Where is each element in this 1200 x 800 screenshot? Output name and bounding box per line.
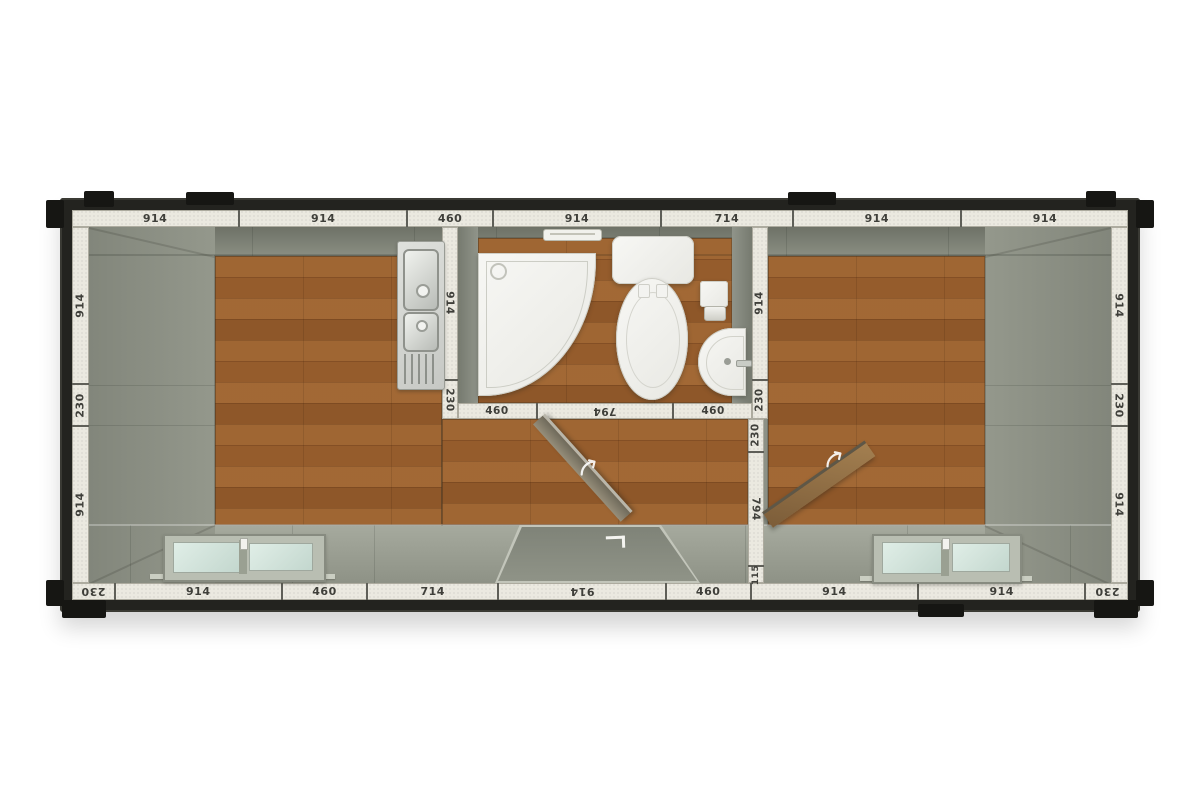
dim-segment: 914 <box>750 583 917 600</box>
dim-segment: 460 <box>458 403 536 419</box>
roof-tab-icon <box>788 192 836 205</box>
window-pane <box>249 543 313 571</box>
dim-segment: 914 <box>960 210 1128 227</box>
dim-segment: 914 <box>1111 227 1128 383</box>
panel-seam <box>985 425 1111 426</box>
panel-seam <box>89 425 215 426</box>
bathroom-wall-east: 914 230 <box>752 227 768 419</box>
wall-shadow-line <box>89 254 1111 256</box>
window-pane <box>882 542 942 574</box>
toilet-paper-roll <box>704 306 726 321</box>
dim-segment: 914 <box>72 210 238 227</box>
dim-segment: 714 <box>366 583 497 600</box>
panel-seam <box>948 227 949 256</box>
panel-seam <box>374 525 375 583</box>
corner-casting-icon <box>1136 200 1154 228</box>
dim-segment: 914 <box>917 583 1084 600</box>
dimension-strip-top: 914 914 460 914 714 914 914 <box>72 210 1128 227</box>
corner-casting-icon <box>1094 600 1138 618</box>
shower-drain-icon <box>490 263 507 280</box>
dim-segment: 460 <box>406 210 492 227</box>
dim-segment: 794 <box>748 451 764 565</box>
seat-hinge-icon <box>638 284 650 298</box>
seat-hinge-icon <box>656 284 668 298</box>
dim-segment: 914 <box>497 583 664 600</box>
dim-segment: 914 <box>238 210 406 227</box>
corner-casting-icon <box>62 600 106 618</box>
window-right <box>872 534 1022 584</box>
toilet-paper-holder <box>700 281 728 307</box>
floor-plan-canvas: 914 914 460 914 714 914 914 230 914 460 … <box>0 0 1200 800</box>
corner-casting-icon <box>46 580 64 606</box>
dim-segment: 914 <box>752 227 768 379</box>
panel-seam <box>89 385 215 386</box>
dim-segment: 230 <box>752 379 768 419</box>
roof-tab-icon <box>918 604 964 617</box>
dim-segment: 230 <box>1084 583 1128 600</box>
panel-seam <box>252 227 253 256</box>
wall-east <box>985 227 1111 583</box>
toilet-seat <box>626 292 680 388</box>
roof-tab-icon <box>186 192 234 205</box>
partition-wall-right: 230 794 115 <box>748 419 764 583</box>
wall-west <box>89 227 215 583</box>
toilet-bowl <box>616 278 688 400</box>
sink-bowl-large <box>403 249 439 311</box>
entrance-threshold <box>498 527 697 581</box>
window-pane <box>173 542 240 573</box>
faucet-icon <box>416 284 430 298</box>
panel-seam <box>745 525 746 583</box>
dim-segment: 460 <box>665 583 750 600</box>
door-corner-mark-icon <box>606 536 625 549</box>
door-swing-arrow-icon <box>822 448 844 470</box>
dimension-strip-right: 914 230 914 <box>1111 227 1128 583</box>
dim-segment: 460 <box>281 583 366 600</box>
corner-casting-icon <box>1086 191 1116 207</box>
basin-drain-icon <box>724 358 731 365</box>
dim-segment: 230 <box>1111 383 1128 424</box>
dim-segment: 230 <box>72 583 114 600</box>
corner-casting-icon <box>84 191 114 207</box>
window-left <box>163 534 326 582</box>
dim-segment: 914 <box>114 583 281 600</box>
dim-segment: 115 <box>748 565 764 583</box>
dim-segment: 714 <box>660 210 792 227</box>
toilet-cistern <box>612 236 694 284</box>
window-handle-icon <box>942 538 950 550</box>
corner-casting-icon <box>1136 580 1154 606</box>
panel-seam <box>1070 525 1071 583</box>
bathroom-wall-west-face <box>458 227 478 403</box>
bathroom-vent <box>543 229 602 241</box>
dimension-strip-bottom: 230 914 460 714 914 460 914 914 230 <box>72 583 1128 600</box>
dim-segment: 914 <box>72 227 89 383</box>
sink-drainboard <box>404 354 438 384</box>
dim-segment: 914 <box>72 425 89 583</box>
dim-segment: 914 <box>1111 425 1128 583</box>
dim-segment: 794 <box>536 403 672 419</box>
dim-segment: 914 <box>792 210 960 227</box>
dim-segment: 230 <box>748 419 764 451</box>
corner-casting-icon <box>46 200 64 228</box>
dimension-strip-left: 914 230 914 <box>72 227 89 583</box>
panel-seam <box>130 525 131 583</box>
faucet-icon <box>416 320 428 332</box>
dim-segment: 230 <box>72 383 89 424</box>
bathroom-wall-south: 460 794 460 <box>458 403 752 419</box>
dim-segment: 914 <box>492 210 660 227</box>
dim-segment: 460 <box>672 403 752 419</box>
door-swing-arrow-icon <box>578 458 600 480</box>
panel-seam <box>985 385 1111 386</box>
window-handle-icon <box>240 538 248 550</box>
basin-faucet-icon <box>736 360 752 367</box>
panel-seam <box>786 227 787 256</box>
window-pane <box>952 543 1010 572</box>
sink-bowl-small <box>403 312 439 352</box>
kitchen-sink <box>397 241 445 390</box>
